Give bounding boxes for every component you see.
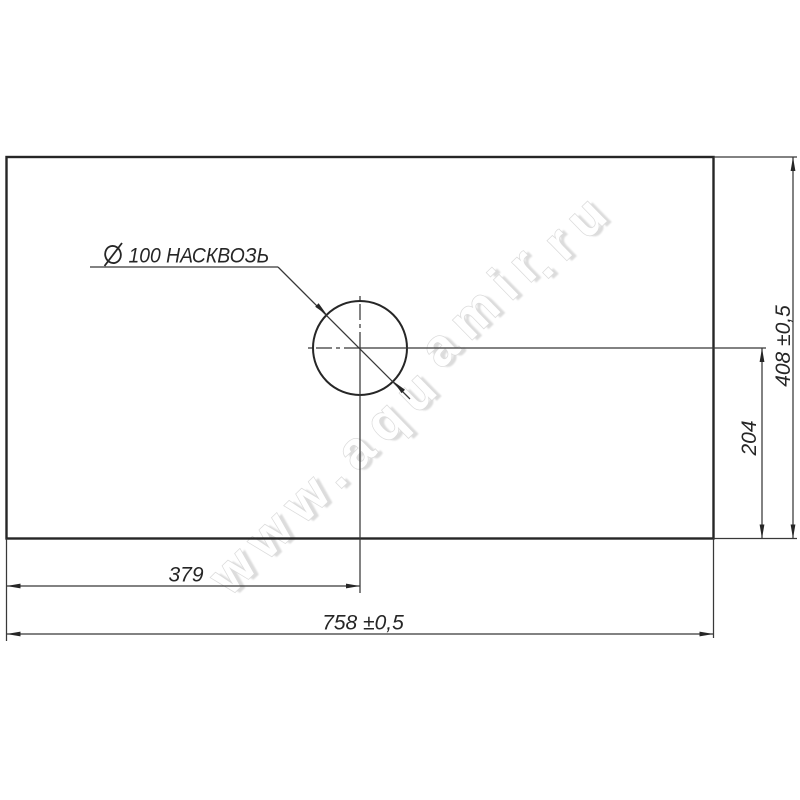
svg-text:www.aqu: www.aqu	[197, 352, 455, 606]
svg-text:379: 379	[168, 564, 203, 587]
svg-text:408 ±0,5: 408 ±0,5	[772, 305, 795, 387]
svg-text:204: 204	[738, 420, 761, 456]
svg-text:758 ±0,5: 758 ±0,5	[322, 612, 404, 635]
svg-text:100 НАСКВОЗЬ: 100 НАСКВОЗЬ	[129, 244, 270, 268]
